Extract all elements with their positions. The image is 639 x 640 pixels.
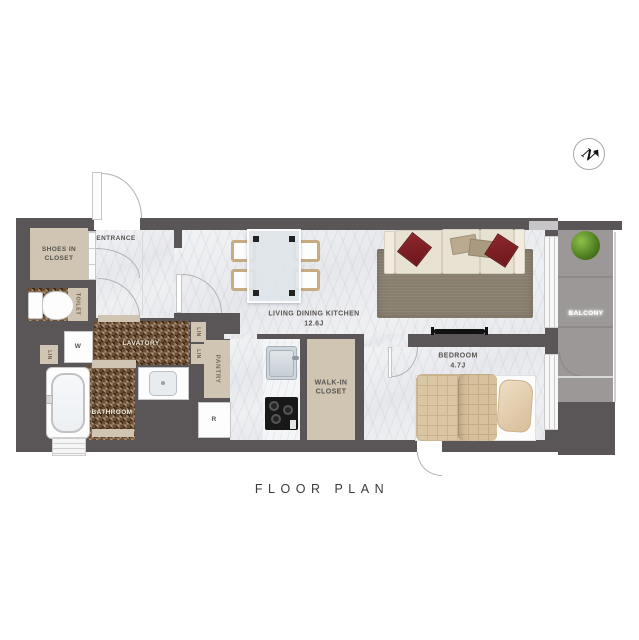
bathroom-lower-threshold: [92, 429, 134, 437]
table-corner-dot: [289, 290, 295, 296]
bedroom-size-label: 4.7J: [450, 363, 465, 372]
toilet-tank: [28, 292, 43, 319]
vanity-faucet: [161, 381, 165, 385]
kitchen-aisle-floor: [230, 339, 263, 440]
lavatory-label: LAVATORY: [122, 340, 159, 348]
table-corner-dot: [253, 236, 259, 242]
floor-plan-title: FLOOR PLAN: [255, 482, 389, 496]
balcony-divider: [558, 276, 613, 278]
service-door-opening: [417, 440, 442, 452]
stove-burner: [283, 405, 293, 415]
table-corner-dot: [253, 290, 259, 296]
north-indicator: N: [572, 137, 606, 171]
bedroom-window: [544, 354, 558, 430]
table-corner-dot: [289, 236, 295, 242]
washer-label: W: [75, 343, 82, 351]
linen-hall-label: LIN: [46, 350, 52, 360]
corner-window: [529, 221, 558, 230]
toilet-label: TOILET: [74, 293, 81, 315]
wic-label-line2: CLOSET: [316, 389, 347, 398]
bathroom-steps: [52, 437, 86, 456]
bedroom-label: BEDROOM: [438, 353, 477, 362]
tv-stand-tick: [485, 327, 488, 335]
wic-label-line1: WALK-IN: [315, 380, 348, 389]
floor-plan-page: ENTRANCE SHOES IN CLOSET TOILET W LIN LA…: [0, 0, 639, 640]
balcony-rail: [614, 232, 616, 402]
shoes-closet-label-line1: SHOES IN: [42, 246, 76, 254]
entrance-door-leaf: [92, 172, 102, 220]
bed-duvet-fold: [458, 374, 497, 441]
bathtub-inner: [51, 373, 85, 433]
bathroom-threshold: [92, 360, 136, 368]
linen-lower-label: LIN: [195, 349, 201, 359]
plant: [571, 231, 600, 260]
bedroom-doorway-floor: [364, 334, 408, 347]
linen-upper-label: LIN: [195, 327, 201, 337]
balcony-divider: [558, 376, 613, 378]
toilet-bowl: [42, 291, 74, 320]
sofa-armrest: [384, 231, 395, 274]
ldk-size-label: 12.6J: [304, 321, 324, 330]
bed-pillow: [496, 379, 534, 433]
shoes-closet-label-line2: CLOSET: [45, 255, 74, 263]
entrance-door-arc: [102, 173, 142, 218]
balcony-label: BALCONY: [569, 310, 604, 318]
ldk-label: LIVING DINING KITCHEN: [268, 311, 359, 320]
genkan-step-line: [142, 231, 143, 316]
bathroom-label: BATHROOM: [92, 409, 133, 417]
stove-grill: [290, 420, 296, 429]
pantry-label: PANTRY: [213, 355, 221, 384]
stove-burner: [269, 401, 279, 411]
service-door-arc: [417, 452, 442, 476]
bathtub-faucet: [46, 395, 53, 404]
tv: [434, 329, 485, 334]
ldk-window: [544, 236, 558, 328]
stove-burner: [271, 414, 281, 424]
entrance-label: ENTRANCE: [96, 235, 135, 243]
shoes-closet-sliding-door: [88, 231, 96, 280]
balcony-bottom-wall: [558, 402, 615, 455]
balcony-divider: [558, 326, 613, 328]
balcony-top-wall: [558, 221, 622, 230]
kitchen-sink-basin: [269, 350, 294, 377]
refrigerator-label: R: [211, 416, 216, 424]
kitchen-faucet: [292, 356, 299, 360]
